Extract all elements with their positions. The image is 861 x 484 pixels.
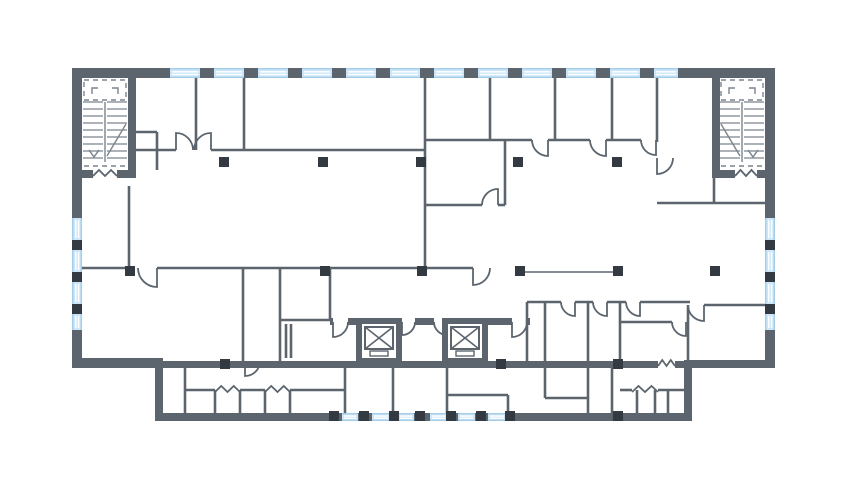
window: [430, 413, 447, 421]
column: [765, 240, 775, 250]
wall-segment: [117, 170, 136, 178]
wall-segment: [488, 318, 512, 325]
window-glass: [566, 68, 596, 78]
window-glass: [654, 68, 678, 78]
column: [613, 266, 623, 276]
window: [765, 218, 775, 240]
wall-segment: [712, 170, 735, 178]
window-glass: [610, 68, 640, 78]
window: [765, 282, 775, 304]
column: [613, 411, 623, 421]
column: [318, 157, 328, 167]
wall-segment: [72, 170, 93, 178]
column: [219, 157, 229, 167]
window: [214, 68, 244, 78]
window-glass: [258, 68, 288, 78]
window-glass: [72, 250, 82, 272]
window: [610, 68, 640, 78]
window-glass: [765, 250, 775, 272]
window: [434, 68, 464, 78]
elevator: [356, 318, 402, 362]
column: [329, 411, 339, 421]
column: [765, 304, 775, 314]
wall-segment: [712, 68, 720, 178]
window-glass: [390, 68, 420, 78]
window-glass: [765, 282, 775, 304]
wall-segment: [128, 68, 136, 178]
window: [488, 413, 506, 421]
column: [359, 411, 369, 421]
window-glass: [478, 68, 508, 78]
column: [220, 359, 230, 369]
column: [320, 266, 330, 276]
wall-segment: [415, 318, 434, 325]
floor-plan-svg: [0, 0, 861, 484]
column: [476, 411, 486, 421]
window: [458, 413, 475, 421]
column: [72, 304, 82, 314]
wall-segment: [163, 361, 658, 368]
window: [258, 68, 288, 78]
window-glass: [522, 68, 552, 78]
window: [765, 314, 775, 330]
floor-plan-viewport: [0, 0, 861, 484]
window: [654, 68, 678, 78]
window: [72, 218, 82, 240]
window-glass: [214, 68, 244, 78]
window: [302, 68, 332, 78]
window-glass: [170, 68, 200, 78]
column: [415, 411, 425, 421]
column: [612, 157, 622, 167]
wall-segment: [72, 358, 163, 368]
wall-segment: [757, 170, 775, 178]
column: [496, 359, 506, 369]
column: [389, 411, 399, 421]
column: [613, 359, 623, 369]
window: [566, 68, 596, 78]
window-glass: [302, 68, 332, 78]
column: [710, 266, 720, 276]
wall-segment: [684, 368, 692, 413]
window: [522, 68, 552, 78]
window: [478, 68, 508, 78]
window: [72, 250, 82, 272]
window-glass: [72, 282, 82, 304]
window-glass: [72, 314, 82, 330]
column: [416, 157, 426, 167]
column: [515, 266, 525, 276]
window: [346, 68, 376, 78]
window-glass: [765, 218, 775, 240]
window: [170, 68, 200, 78]
window-glass: [72, 218, 82, 240]
column: [505, 411, 515, 421]
column: [72, 240, 82, 250]
window: [372, 413, 390, 421]
window: [390, 68, 420, 78]
column: [72, 272, 82, 282]
elevator: [442, 318, 488, 362]
window-glass: [765, 314, 775, 330]
window: [72, 282, 82, 304]
window: [398, 413, 414, 421]
window-glass: [434, 68, 464, 78]
column: [125, 266, 135, 276]
window: [765, 250, 775, 272]
window: [342, 413, 358, 421]
column: [513, 157, 523, 167]
wall-segment: [155, 358, 163, 413]
column: [446, 411, 456, 421]
window-glass: [346, 68, 376, 78]
column: [417, 266, 427, 276]
wall-segment: [675, 361, 684, 368]
column: [765, 272, 775, 282]
wall-segment: [684, 360, 775, 368]
window: [72, 314, 82, 330]
